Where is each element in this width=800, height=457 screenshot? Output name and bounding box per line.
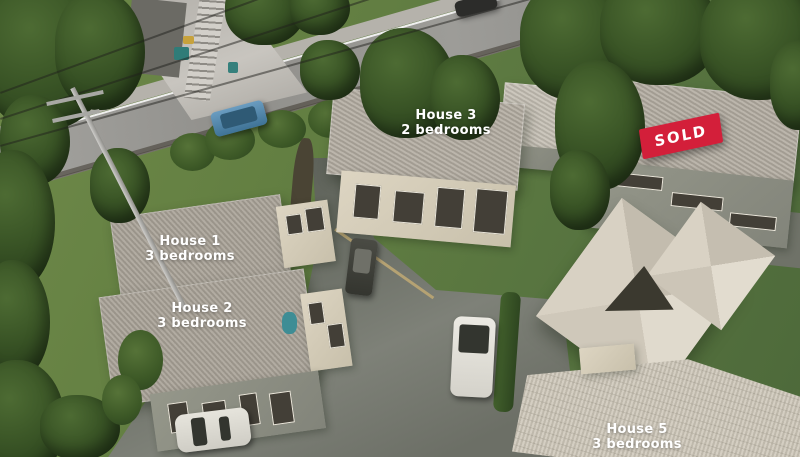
house2-window — [307, 301, 325, 325]
house3-window — [353, 184, 382, 220]
aerial-development-scene: House 1 3 bedrooms House 2 3 bedrooms Ho… — [0, 0, 800, 457]
house3-window — [434, 187, 465, 229]
house2-window — [327, 323, 346, 349]
house1-title: House 1 — [125, 234, 255, 249]
house1-window — [285, 213, 304, 235]
house2-subtitle: 3 bedrooms — [137, 316, 267, 331]
white-van — [450, 316, 496, 398]
sedan-windshield — [190, 417, 207, 446]
white-van-windshield — [458, 324, 489, 354]
house1-subtitle: 3 bedrooms — [125, 249, 255, 264]
house3-title: House 3 — [381, 108, 511, 123]
spa-pool — [282, 312, 297, 334]
house2-title: House 2 — [137, 301, 267, 316]
house3-label: House 3 2 bedrooms — [381, 108, 511, 138]
sedan-rear-window — [218, 416, 231, 441]
suv-roof-glass — [352, 248, 372, 274]
hip-house-garage-wall — [579, 344, 636, 375]
garden-bush — [102, 375, 142, 425]
tree — [550, 150, 610, 230]
house3-window — [392, 190, 425, 224]
house3-glass-door — [473, 188, 509, 235]
house5-subtitle: 3 bedrooms — [572, 437, 702, 452]
wheelie-bin — [228, 62, 238, 73]
excavator — [183, 36, 194, 44]
van-windshield — [219, 106, 258, 130]
house3-subtitle: 2 bedrooms — [381, 123, 511, 138]
house1-label: House 1 3 bedrooms — [125, 234, 255, 264]
house2-label: House 2 3 bedrooms — [137, 301, 267, 331]
house5-title: House 5 — [572, 422, 702, 437]
house2-door — [269, 391, 295, 426]
house5-label: House 5 3 bedrooms — [572, 422, 702, 452]
